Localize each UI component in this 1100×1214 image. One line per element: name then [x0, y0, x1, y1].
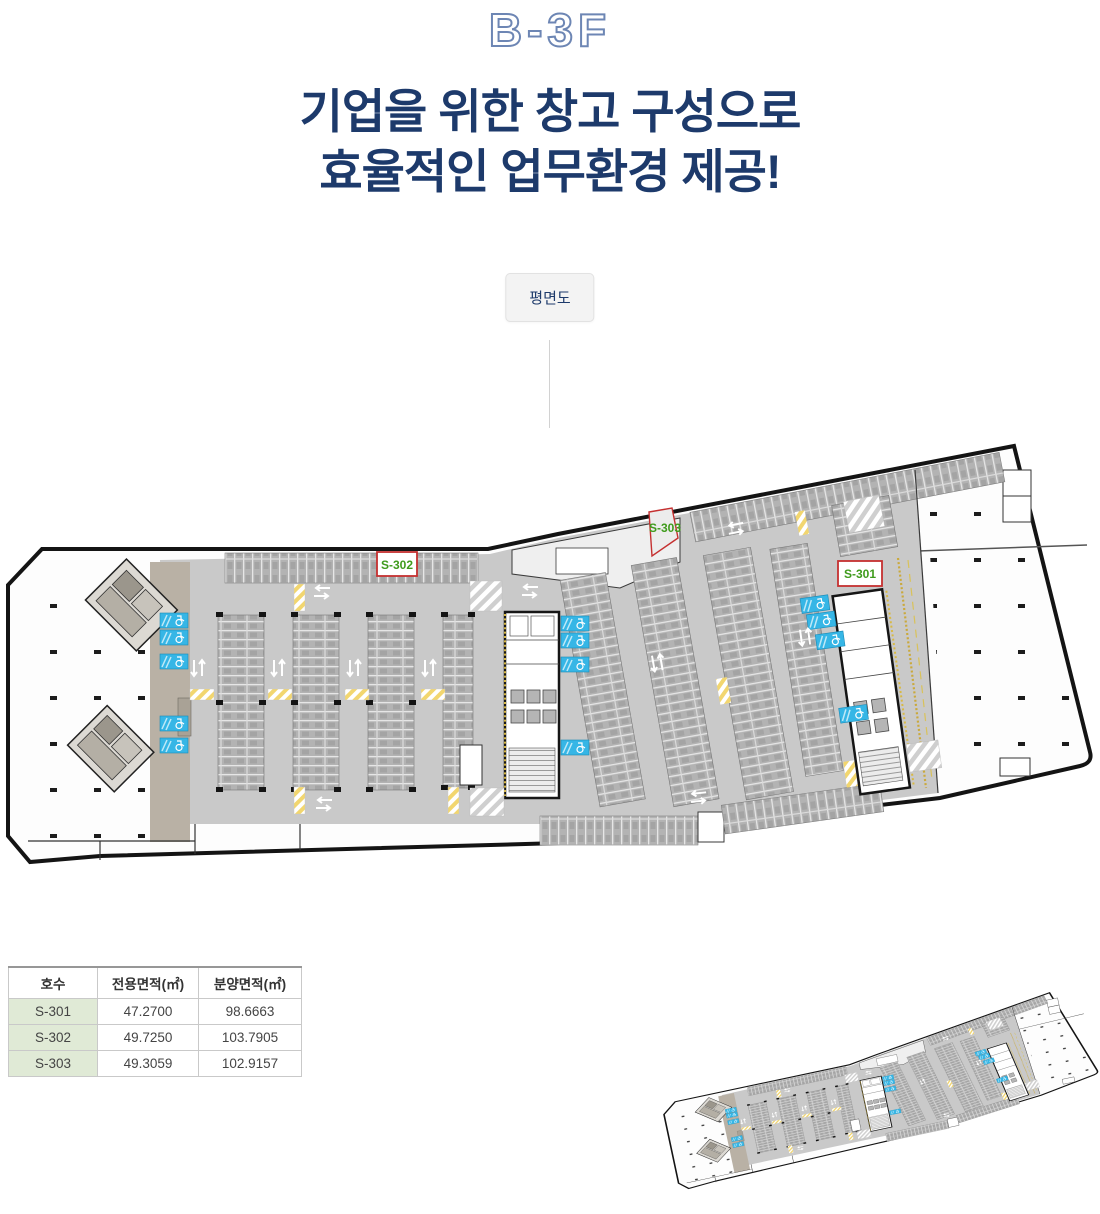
- supply-cell: 103.7905: [199, 1025, 302, 1051]
- supply-cell: 98.6663: [199, 999, 302, 1025]
- exclusive-cell: 49.3059: [98, 1051, 199, 1077]
- exclusive-cell: 47.2700: [98, 999, 199, 1025]
- table-row: S-302 49.7250 103.7905: [9, 1025, 302, 1051]
- col-header-unit: 호수: [9, 967, 98, 999]
- supply-cell: 102.9157: [199, 1051, 302, 1077]
- unit-cell: S-303: [9, 1051, 98, 1077]
- col-header-exclusive: 전용면적(㎡): [98, 967, 199, 999]
- main-floor-plan: [8, 446, 1091, 862]
- unit-cell: S-302: [9, 1025, 98, 1051]
- unit-cell: S-301: [9, 999, 98, 1025]
- thumbnail-floor-plan: [656, 986, 1100, 1190]
- table-row: S-303 49.3059 102.9157: [9, 1051, 302, 1077]
- col-header-supply: 분양면적(㎡): [199, 967, 302, 999]
- exclusive-cell: 49.7250: [98, 1025, 199, 1051]
- unit-label-s303: S-303: [649, 521, 681, 535]
- table-row: S-301 47.2700 98.6663: [9, 999, 302, 1025]
- unit-label-s301: S-301: [844, 567, 876, 581]
- unit-label-s302: S-302: [381, 558, 413, 572]
- area-table: 호수 전용면적(㎡) 분양면적(㎡) S-301 47.2700 98.6663…: [8, 966, 302, 1077]
